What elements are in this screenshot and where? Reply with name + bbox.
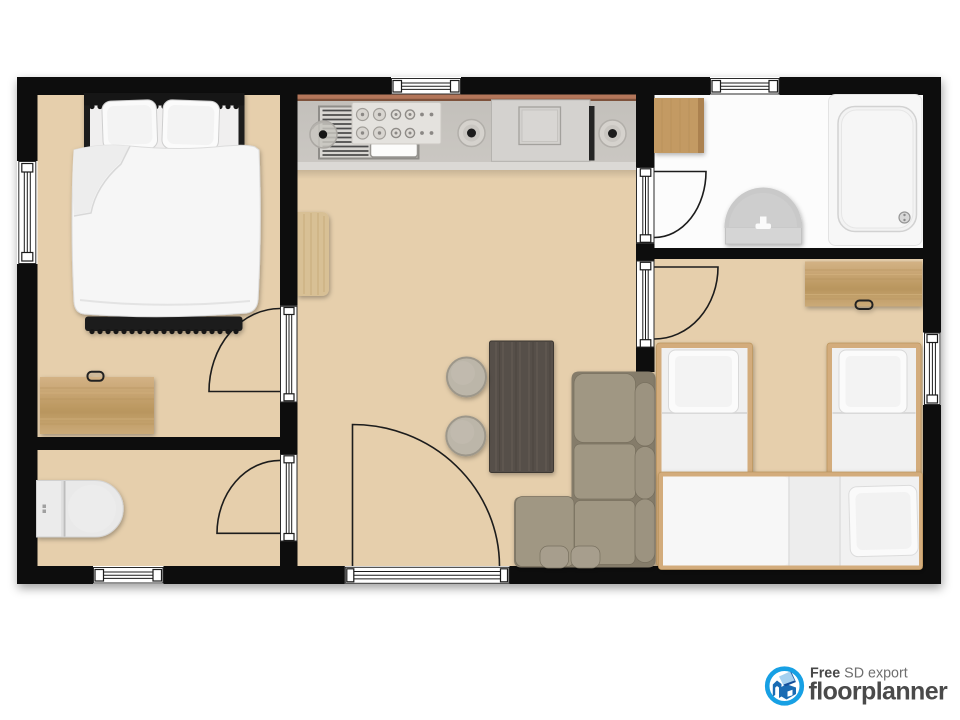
svg-text:floorplanner: floorplanner [809,678,949,706]
